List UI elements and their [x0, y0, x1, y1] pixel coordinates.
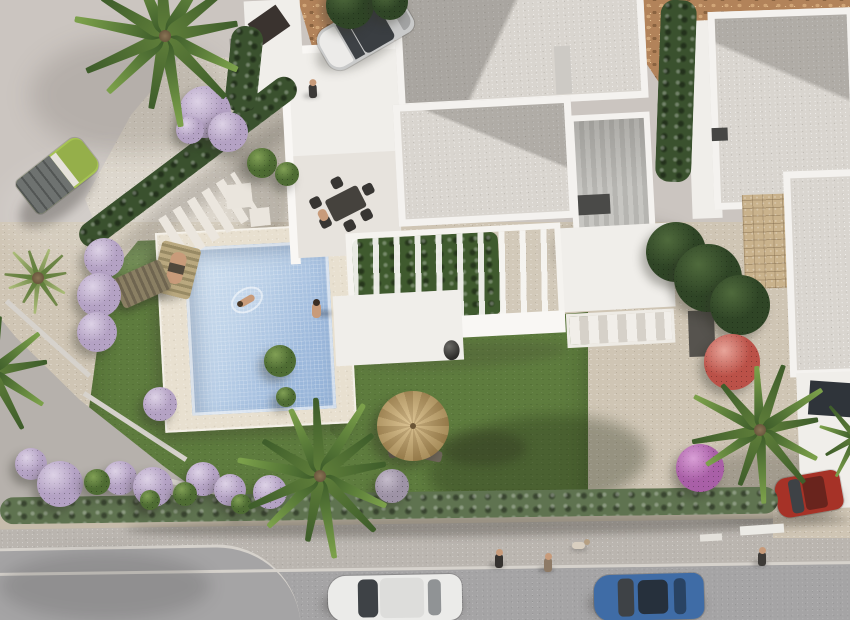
purple-bush-6 — [37, 461, 83, 507]
purple-bush-2 — [77, 273, 121, 317]
green-bush-3 — [173, 482, 197, 506]
car-white — [328, 574, 463, 620]
car-white-rear-glass — [428, 579, 442, 615]
parasol-shadow — [440, 430, 526, 466]
dining-chair-5 — [361, 182, 376, 197]
purple-bush-3 — [77, 312, 117, 352]
road-corner-shadow — [0, 552, 210, 620]
palm-left-edge — [0, 302, 62, 442]
dining-chair-6 — [330, 175, 345, 190]
dining-chair-4 — [359, 207, 374, 222]
palm-main — [73, 0, 257, 128]
car-blue-sunroof — [638, 580, 669, 615]
pedestrian-1-head — [496, 549, 503, 556]
tree-right-3 — [710, 275, 770, 335]
palm-garden — [236, 392, 404, 560]
palm-right — [686, 356, 834, 504]
dog-head — [584, 539, 590, 545]
roof-mid-shade — [400, 103, 569, 219]
ac-unit — [578, 194, 611, 216]
pedestrian-1 — [494, 549, 504, 569]
parasol-pole — [410, 423, 416, 429]
pedestrian-3 — [757, 547, 767, 567]
palm-right-trunk — [754, 424, 766, 436]
villa-roof-mid — [393, 96, 577, 227]
neighbor-roof-2 — [783, 169, 850, 377]
dining-chair-1 — [308, 195, 323, 210]
green-bush-8 — [275, 162, 299, 186]
pedestrian-1-body — [495, 554, 503, 568]
agave-trunk — [32, 272, 44, 284]
villa — [255, 0, 720, 384]
villa-stairs-right — [566, 309, 676, 349]
person-terrace — [307, 79, 318, 99]
swimmer — [234, 289, 259, 310]
scene-canvas — [0, 0, 850, 620]
pedestrian-3-head — [759, 547, 766, 554]
car-white-roof — [380, 577, 425, 618]
car-blue-rear-glass — [674, 578, 687, 614]
green-bush-1 — [84, 469, 110, 495]
car-white-windshield — [358, 579, 379, 617]
green-bush-5 — [264, 345, 296, 377]
pedestrian-3-body — [758, 552, 766, 566]
purple-bush-4 — [143, 387, 177, 421]
roof-vent — [554, 46, 572, 95]
green-bush-2 — [140, 490, 160, 510]
roof-upper-shade — [400, 0, 641, 103]
dining-chair-3 — [342, 218, 357, 233]
car-blue — [593, 573, 704, 620]
pedestrian-2 — [543, 553, 553, 573]
purple-bush-1 — [84, 238, 124, 278]
villa-roof-upper — [393, 0, 649, 111]
pedestrian-2-body — [544, 558, 552, 572]
curb-stone-b — [700, 533, 722, 541]
dog-body — [572, 542, 585, 549]
dog — [572, 539, 592, 551]
pedestrian-2-head — [545, 553, 552, 560]
green-bush-7 — [247, 148, 277, 178]
palm-main-trunk — [159, 30, 171, 42]
car-blue-windshield — [618, 578, 635, 616]
paver-large — [225, 183, 253, 210]
palm-garden-trunk — [314, 470, 326, 482]
hedge-right-column — [655, 0, 697, 183]
neighbor-window — [712, 128, 728, 142]
